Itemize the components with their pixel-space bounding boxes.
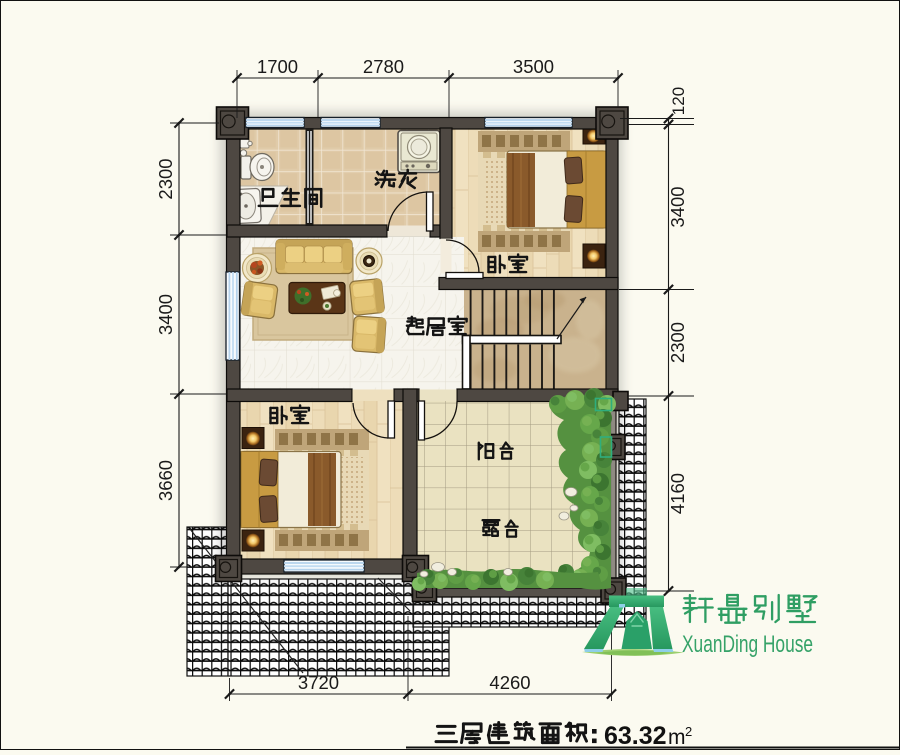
- svg-text:3660: 3660: [155, 460, 176, 501]
- svg-text:2: 2: [685, 724, 692, 739]
- svg-text:2300: 2300: [155, 158, 176, 199]
- svg-text:4160: 4160: [667, 473, 688, 514]
- svg-text:63.32: 63.32: [604, 722, 667, 750]
- svg-text:1700: 1700: [257, 56, 298, 77]
- svg-text:120: 120: [669, 87, 688, 115]
- svg-text:3400: 3400: [667, 186, 688, 227]
- svg-text:2780: 2780: [363, 56, 404, 77]
- svg-text:2300: 2300: [667, 322, 688, 363]
- svg-text:3400: 3400: [155, 294, 176, 335]
- svg-text:m: m: [668, 726, 686, 749]
- svg-text:4260: 4260: [489, 672, 530, 693]
- svg-text:XuanDing House: XuanDing House: [682, 631, 813, 658]
- svg-text:3720: 3720: [298, 672, 339, 693]
- svg-text:3500: 3500: [513, 56, 554, 77]
